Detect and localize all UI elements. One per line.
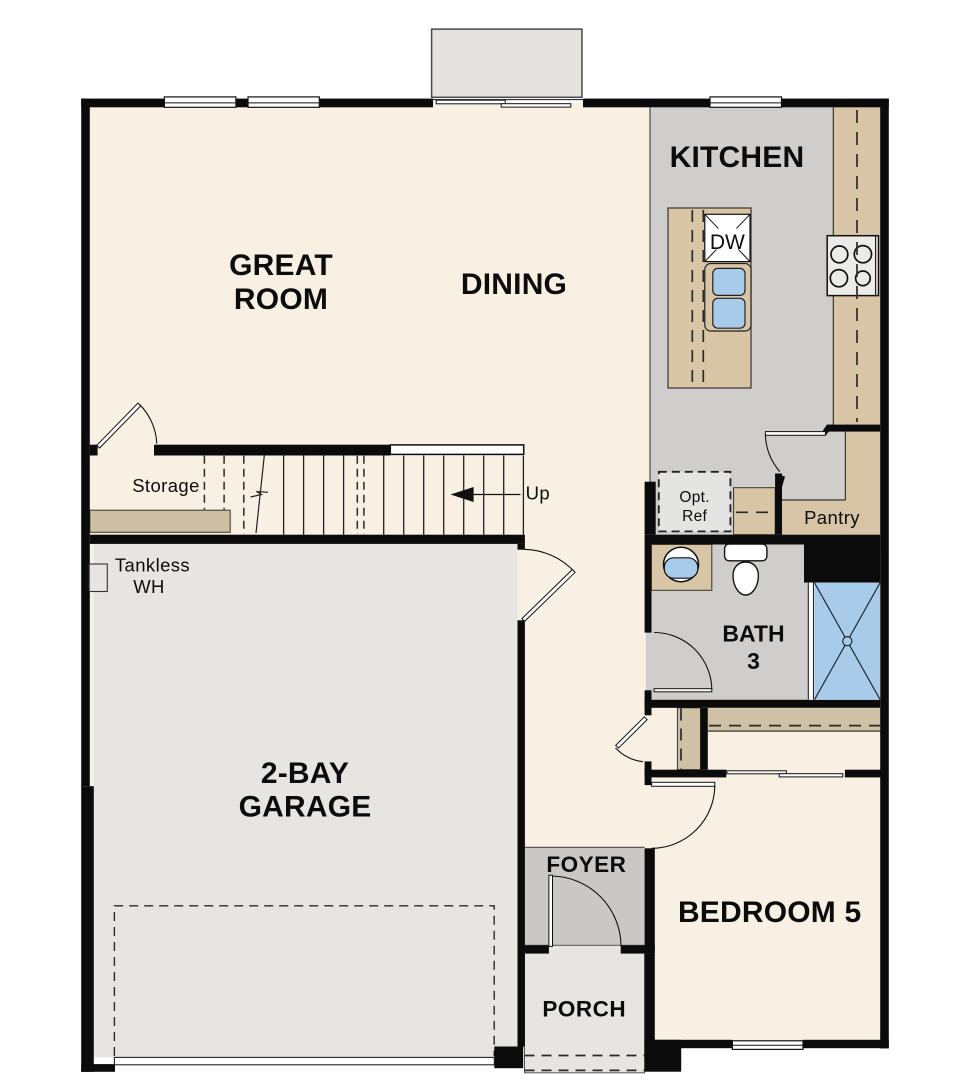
svg-text:2-BAY: 2-BAY	[261, 757, 349, 790]
svg-text:Opt.: Opt.	[679, 489, 710, 506]
svg-text:Pantry: Pantry	[804, 507, 860, 528]
svg-text:GREAT: GREAT	[229, 249, 333, 282]
svg-text:BATH: BATH	[722, 621, 784, 647]
svg-text:FOYER: FOYER	[546, 852, 626, 877]
svg-text:DW: DW	[710, 231, 745, 254]
svg-text:Ref: Ref	[682, 508, 707, 525]
svg-text:DINING: DINING	[461, 268, 567, 301]
svg-text:WH: WH	[133, 576, 165, 597]
svg-text:Tankless: Tankless	[115, 555, 190, 576]
svg-text:3: 3	[747, 648, 760, 674]
svg-text:KITCHEN: KITCHEN	[670, 141, 805, 174]
svg-text:Storage: Storage	[132, 475, 200, 496]
svg-text:BEDROOM 5: BEDROOM 5	[678, 896, 862, 929]
svg-text:GARAGE: GARAGE	[239, 791, 372, 824]
svg-text:ROOM: ROOM	[234, 283, 328, 316]
svg-text:Up: Up	[526, 483, 550, 504]
svg-text:PORCH: PORCH	[542, 997, 626, 1022]
